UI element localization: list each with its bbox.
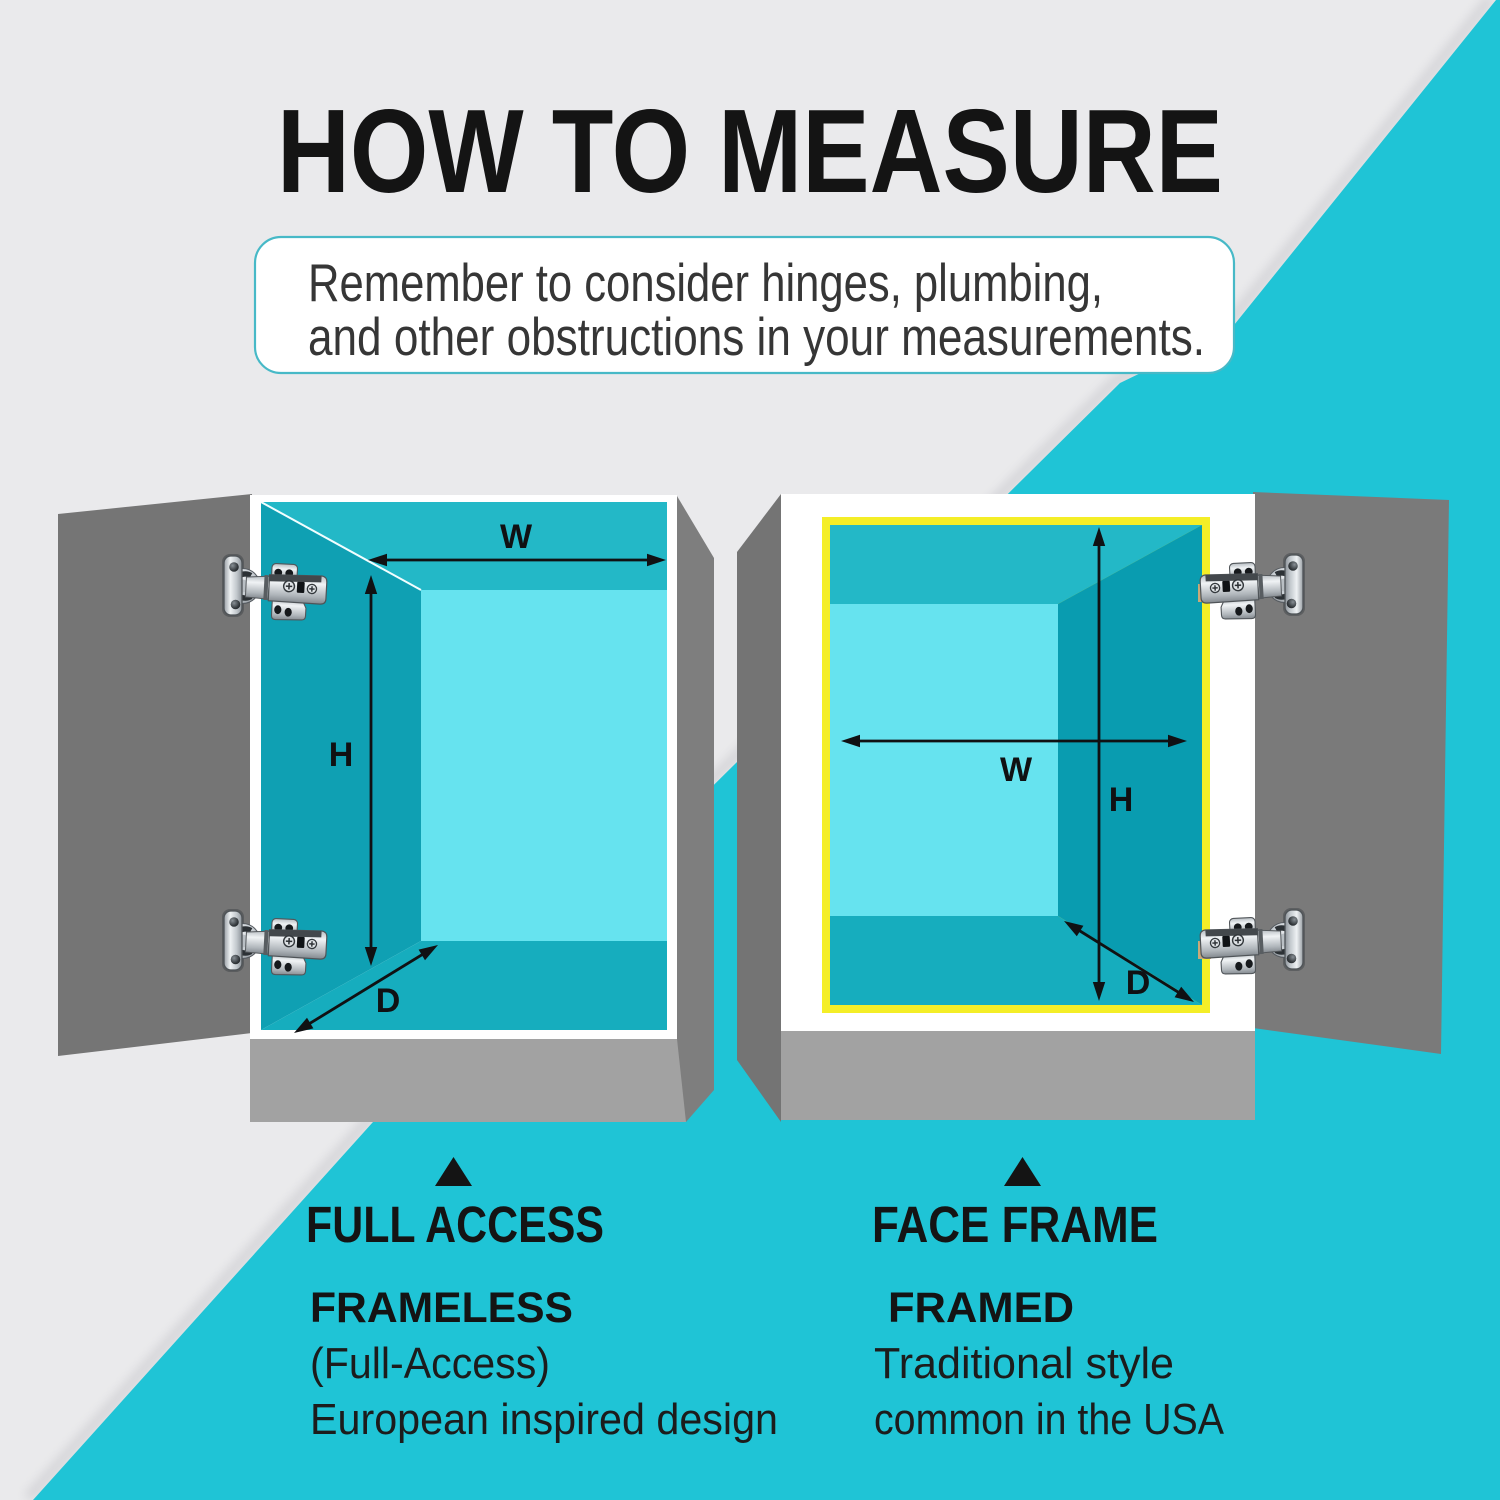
svg-text:D: D	[1126, 964, 1151, 1002]
svg-text:W: W	[1000, 751, 1033, 789]
svg-text:European inspired design: European inspired design	[310, 1395, 778, 1444]
svg-text:common in the USA: common in the USA	[874, 1395, 1225, 1444]
svg-text:Traditional style: Traditional style	[874, 1339, 1174, 1388]
svg-text:FRAMED: FRAMED	[888, 1284, 1074, 1332]
svg-text:FACE FRAME: FACE FRAME	[872, 1196, 1158, 1253]
svg-text:H: H	[329, 736, 354, 774]
svg-text:D: D	[376, 982, 401, 1020]
svg-text:W: W	[500, 518, 533, 556]
svg-text:Remember to consider hinges, p: Remember to consider hinges, plumbing,	[308, 254, 1103, 313]
svg-text:FRAMELESS: FRAMELESS	[310, 1284, 573, 1332]
svg-text:FULL ACCESS: FULL ACCESS	[306, 1196, 604, 1253]
svg-text:H: H	[1109, 781, 1134, 819]
svg-text:(Full-Access): (Full-Access)	[310, 1339, 550, 1388]
svg-text:HOW TO MEASURE: HOW TO MEASURE	[277, 85, 1223, 218]
svg-text:and other obstructions in your: and other obstructions in your measureme…	[308, 308, 1205, 367]
